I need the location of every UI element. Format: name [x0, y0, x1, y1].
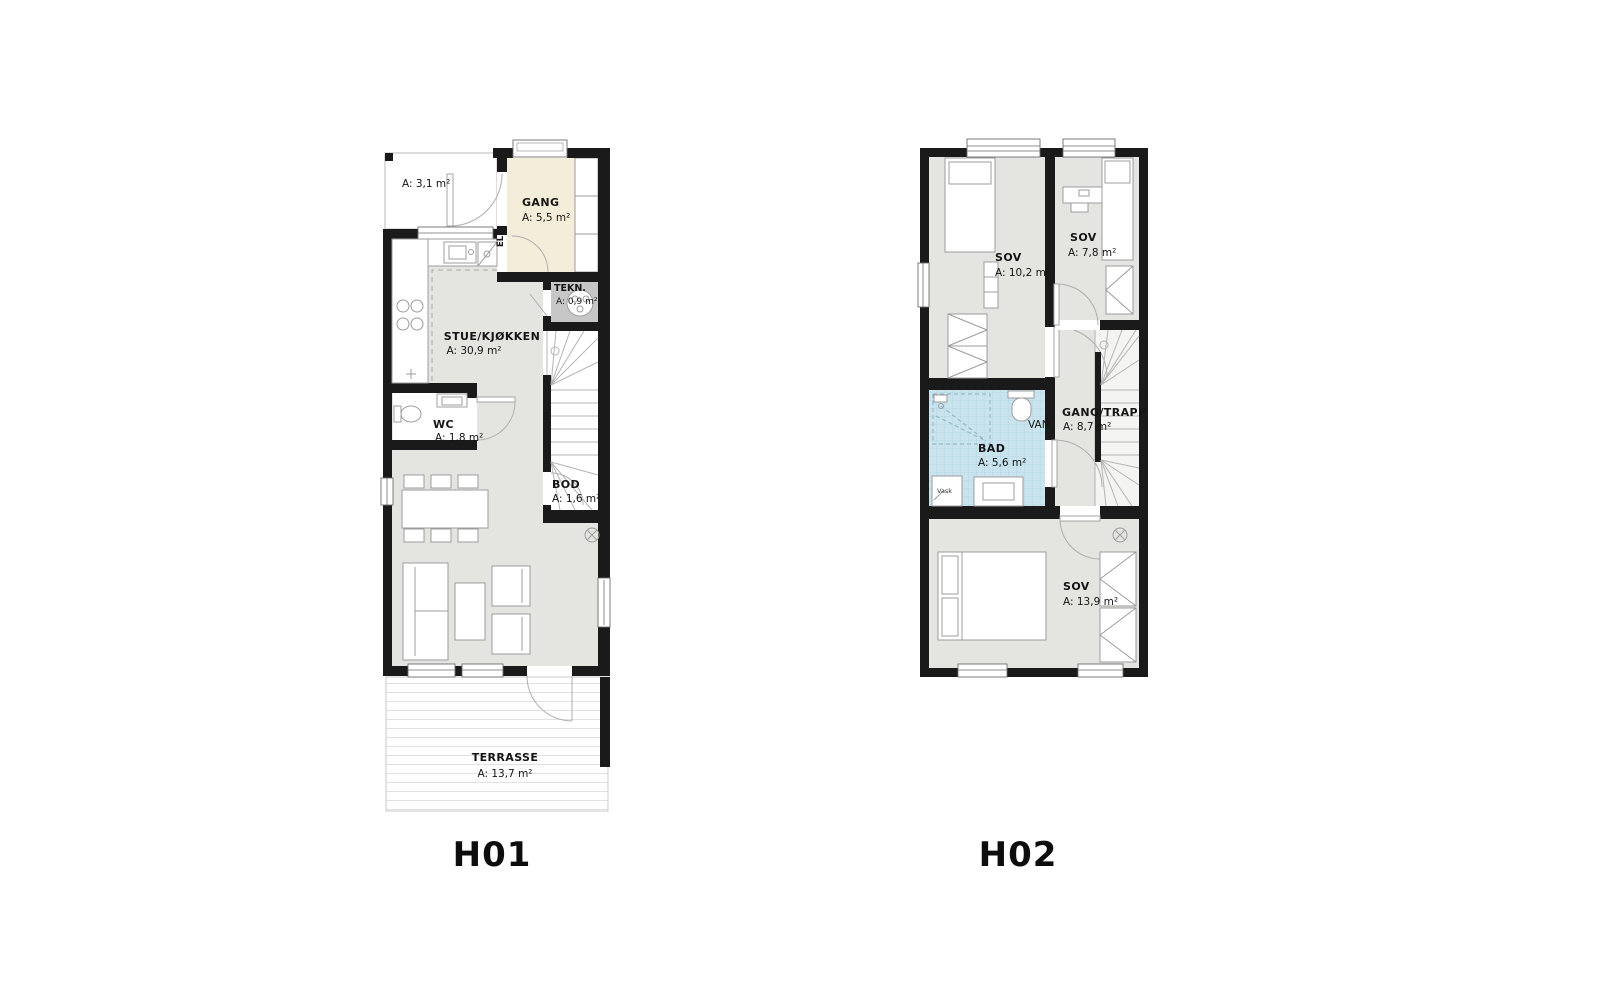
bed-double [938, 552, 1046, 640]
entry-porch [385, 153, 497, 229]
gang-trapp-area-label: A: 8,7 m² [1063, 421, 1111, 433]
bottom-window-2 [462, 664, 503, 677]
bod-name-label: BOD [552, 478, 580, 491]
bottom-window-1 [408, 664, 455, 677]
kitchen-board-icon [478, 242, 497, 266]
kitchen-sink-icon [444, 242, 476, 263]
kitchen-window [418, 227, 493, 240]
bottom-window-4 [1078, 664, 1123, 677]
terrasse-name-label: TERRASSE [472, 751, 539, 764]
tekn-name-label: TEKN. [554, 283, 586, 294]
wc-area-label: A: 1,8 m² [435, 432, 483, 444]
left-window [381, 478, 393, 505]
bad-area-label: A: 5,6 m² [978, 457, 1026, 469]
wardrobe-sov2 [1106, 266, 1133, 314]
wardrobe-sov1 [948, 314, 987, 378]
coffee-table [455, 583, 485, 640]
plan-title-h02: H02 [979, 835, 1058, 875]
terrasse-area-label: A: 13,7 m² [477, 768, 532, 780]
sov3-name-label: SOV [1063, 580, 1090, 593]
dining-set [402, 475, 488, 542]
bed-single-1 [945, 158, 995, 252]
armchair-1 [492, 566, 530, 606]
el-label: EL [496, 235, 506, 247]
vask-label: Vask [937, 487, 952, 495]
top-window-1 [967, 139, 1040, 157]
gang-closet [575, 158, 598, 272]
vanity-sink-icon [974, 477, 1023, 506]
floor-plan-page: A: 3,1 m² GANG A: 5,5 m² EL TEKN. A: 0,9… [0, 0, 1600, 1000]
bad-name-label: BAD [978, 442, 1005, 455]
porch-area-label: A: 3,1 m² [402, 178, 450, 190]
floor-plan-diagram: A: 3,1 m² GANG A: 5,5 m² EL TEKN. A: 0,9… [0, 0, 1600, 1000]
armchair-2 [492, 614, 530, 654]
plan-h02: SOV A: 10,2 m² SOV A: 7,8 m² GANG/TRAPP … [918, 139, 1148, 677]
bed-single-2 [1102, 158, 1133, 260]
dining-table [402, 490, 488, 528]
right-window [598, 578, 610, 627]
sov1-area-label: A: 10,2 m² [995, 267, 1050, 279]
gang-trapp-name-label: GANG/TRAPP [1062, 406, 1146, 419]
stue-area-label: A: 30,9 m² [446, 345, 501, 357]
sov3-area-label: A: 13,9 m² [1063, 596, 1118, 608]
wc-name-label: WC [433, 418, 454, 431]
entry-window [513, 140, 567, 157]
sov2-area-label: A: 7,8 m² [1068, 247, 1116, 259]
tekn-area-label: A: 0,9 m² [556, 297, 598, 307]
toilet-icon [394, 406, 421, 422]
bod-area-label: A: 1,6 m² [552, 493, 600, 505]
room-stue-lower [543, 523, 598, 666]
gang-area-label: A: 5,5 m² [522, 212, 570, 224]
sov1-name-label: SOV [995, 251, 1022, 264]
terrasse-deck [386, 677, 608, 811]
sov2-name-label: SOV [1070, 231, 1097, 244]
stue-name-label: STUE/KJØKKEN [444, 330, 540, 343]
gang-name-label: GANG [522, 196, 559, 209]
sofa [403, 563, 448, 660]
wc-sink-icon [437, 394, 467, 407]
left-window-h02 [918, 263, 929, 307]
van-label: VAN [1028, 419, 1050, 431]
plan-title-h01: H01 [453, 835, 532, 875]
plan-h01: A: 3,1 m² GANG A: 5,5 m² EL TEKN. A: 0,9… [381, 140, 610, 811]
bottom-window-3 [958, 664, 1007, 677]
top-window-2 [1063, 139, 1115, 157]
